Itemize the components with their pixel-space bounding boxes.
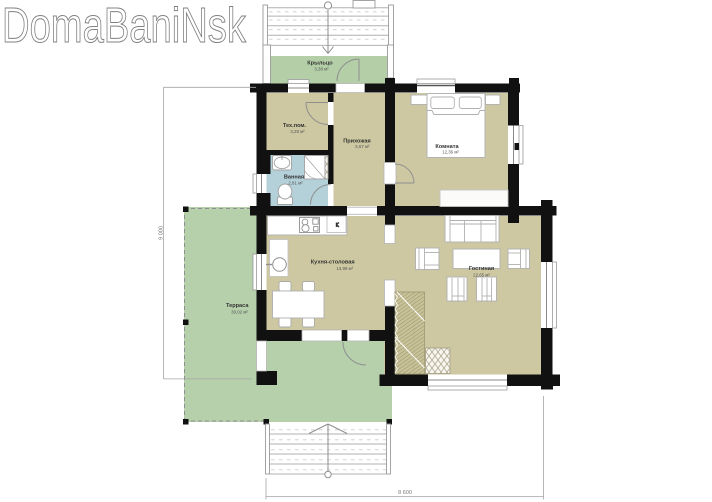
svg-text:8 600: 8 600 [398,490,412,496]
svg-text:3,28 м²: 3,28 м² [290,129,305,134]
svg-text:DomaBaniNsk: DomaBaniNsk [2,0,246,53]
svg-text:22,65 м²: 22,65 м² [473,273,490,278]
svg-text:2,81 м²: 2,81 м² [288,181,303,186]
svg-text:3,38 м²: 3,38 м² [314,67,329,72]
svg-text:Кухня-столовая: Кухня-столовая [311,260,355,266]
svg-text:12,36 м²: 12,36 м² [442,150,459,155]
svg-text:13,99 м²: 13,99 м² [336,266,353,271]
svg-text:30,02 м²: 30,02 м² [231,310,248,315]
svg-text:9 000: 9 000 [159,226,165,240]
svg-text:Терраса: Терраса [226,303,249,309]
svg-text:5,67 м²: 5,67 м² [355,144,370,149]
svg-text:Гостиная: Гостиная [469,266,494,272]
